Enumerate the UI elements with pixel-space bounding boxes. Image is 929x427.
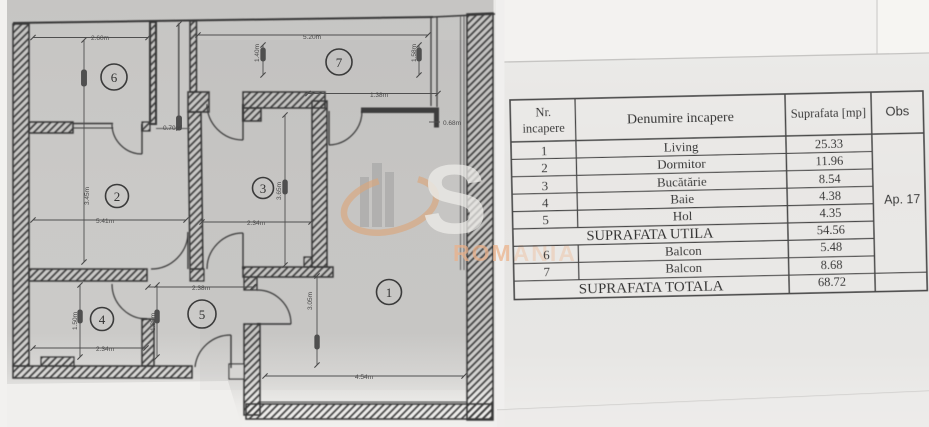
- svg-text:11.96: 11.96: [815, 154, 843, 169]
- svg-text:4: 4: [99, 312, 106, 327]
- svg-text:2.34m: 2.34m: [247, 220, 265, 227]
- svg-text:1.58m: 1.58m: [411, 44, 418, 62]
- svg-text:1.50m: 1.50m: [72, 312, 79, 330]
- svg-text:Balcon: Balcon: [665, 260, 703, 276]
- svg-text:5.20m: 5.20m: [303, 34, 321, 41]
- svg-text:3: 3: [260, 181, 267, 196]
- svg-text:7: 7: [336, 55, 343, 70]
- svg-text:Nr.: Nr.: [535, 105, 551, 119]
- svg-text:Dormitor: Dormitor: [657, 156, 706, 172]
- svg-text:6: 6: [543, 247, 550, 262]
- svg-text:incapere: incapere: [522, 121, 565, 136]
- svg-text:1: 1: [386, 285, 393, 300]
- svg-text:SUPRAFATA TOTALA: SUPRAFATA TOTALA: [579, 278, 724, 297]
- svg-text:SUPRAFATA UTILA: SUPRAFATA UTILA: [586, 226, 714, 245]
- svg-text:4.38: 4.38: [819, 189, 841, 203]
- svg-text:Balcon: Balcon: [665, 243, 703, 259]
- svg-text:Ap. 17: Ap. 17: [884, 192, 920, 207]
- svg-text:3: 3: [541, 178, 548, 193]
- svg-text:0.68m: 0.68m: [443, 120, 461, 127]
- svg-text:Hol: Hol: [673, 208, 693, 223]
- svg-text:5: 5: [542, 212, 549, 227]
- svg-text:1: 1: [541, 143, 548, 158]
- svg-text:2: 2: [541, 160, 548, 175]
- svg-text:Obs: Obs: [885, 103, 910, 119]
- svg-text:4.54m: 4.54m: [355, 374, 373, 381]
- svg-text:68.72: 68.72: [818, 275, 846, 290]
- svg-text:1.38m: 1.38m: [370, 92, 388, 99]
- svg-text:1.40m: 1.40m: [254, 44, 261, 62]
- svg-text:6: 6: [111, 70, 118, 85]
- svg-text:3.45m: 3.45m: [84, 187, 91, 205]
- svg-text:8.68: 8.68: [821, 258, 843, 272]
- svg-text:S: S: [422, 144, 487, 254]
- svg-text:5.41m: 5.41m: [96, 218, 114, 225]
- svg-text:4.35: 4.35: [819, 206, 841, 220]
- svg-text:8.54: 8.54: [819, 172, 842, 186]
- svg-text:7: 7: [543, 264, 550, 279]
- svg-text:Suprafata [mp]: Suprafata [mp]: [791, 105, 867, 121]
- svg-text:54.56: 54.56: [817, 223, 845, 238]
- svg-text:1.35m: 1.35m: [150, 313, 157, 331]
- svg-text:2.34m: 2.34m: [96, 346, 114, 353]
- svg-text:4: 4: [542, 195, 549, 210]
- svg-text:3.05m: 3.05m: [307, 292, 314, 310]
- svg-text:Living: Living: [664, 139, 699, 155]
- svg-text:3.65m: 3.65m: [276, 182, 283, 200]
- svg-text:2: 2: [114, 189, 121, 204]
- svg-text:2.38m: 2.38m: [192, 285, 210, 292]
- svg-text:25.33: 25.33: [815, 137, 843, 152]
- svg-text:Baie: Baie: [670, 191, 694, 207]
- svg-text:5: 5: [199, 307, 206, 322]
- svg-text:5.48: 5.48: [820, 240, 842, 254]
- svg-text:Denumire incapere: Denumire incapere: [627, 110, 734, 127]
- svg-text:Bucătărie: Bucătărie: [657, 174, 707, 190]
- svg-text:0.70m: 0.70m: [163, 125, 181, 132]
- svg-text:2.60m: 2.60m: [91, 35, 109, 42]
